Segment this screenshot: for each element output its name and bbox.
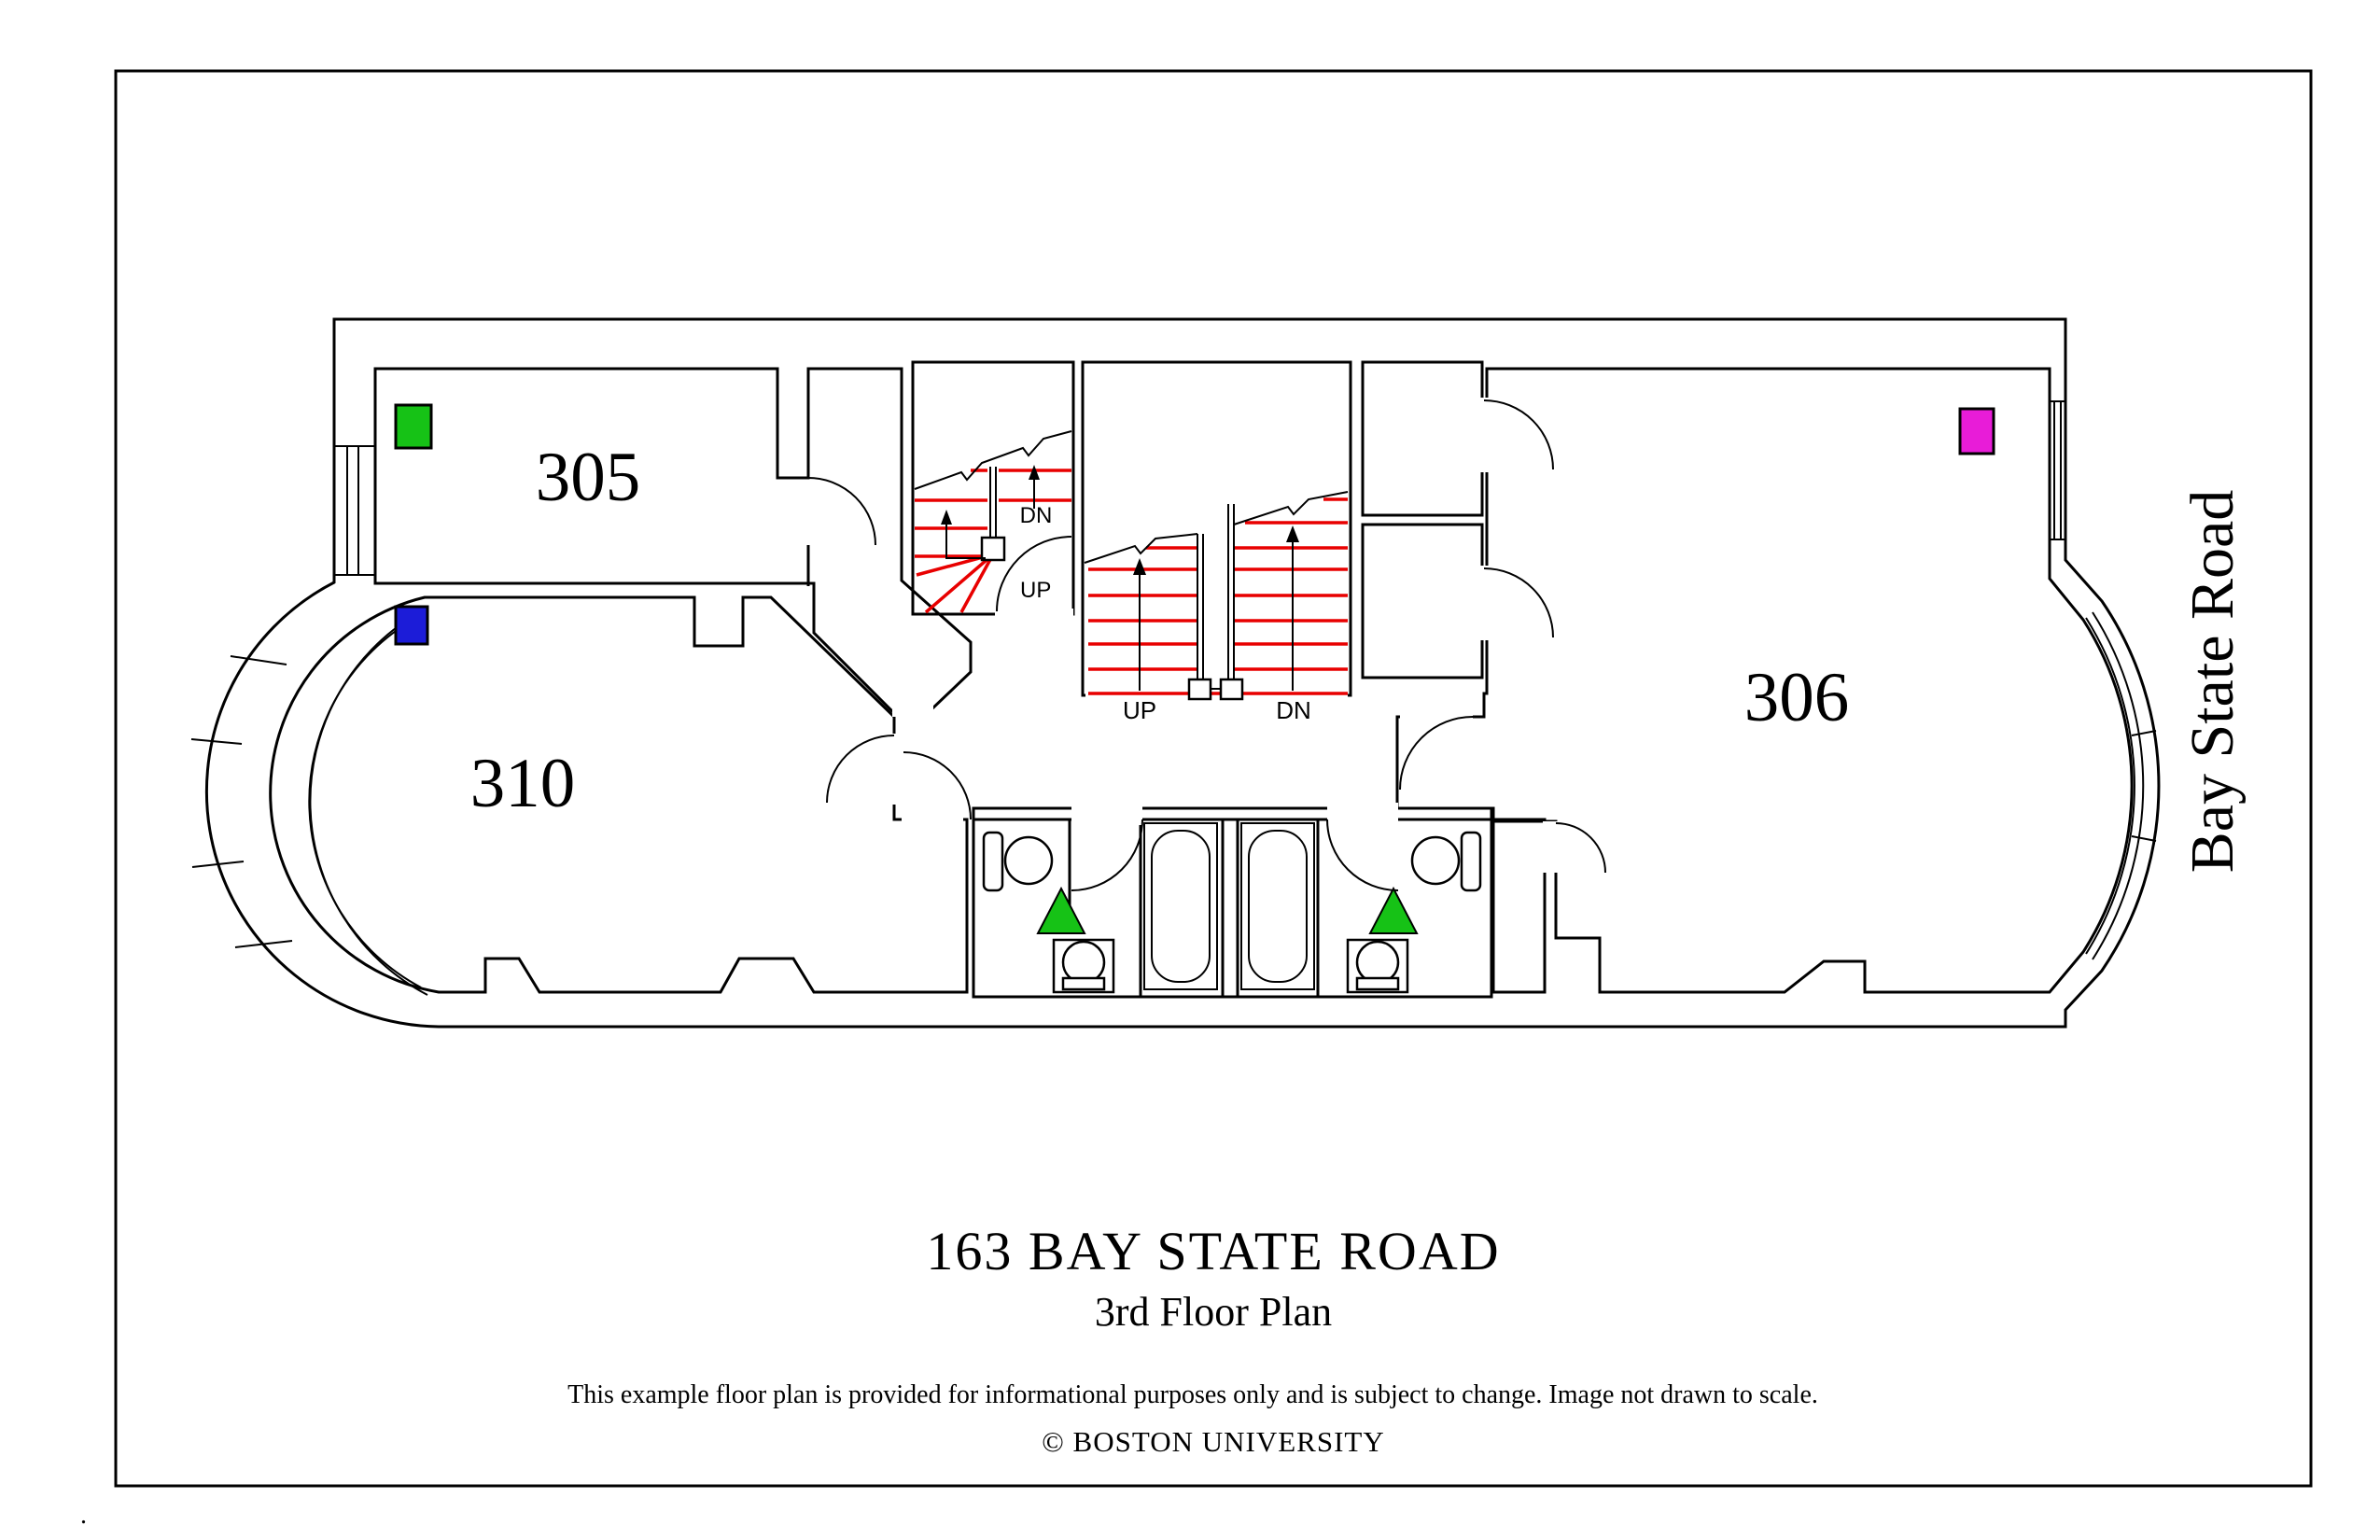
- toilet-bowl-icon: [1005, 837, 1052, 884]
- toilet-tank-icon: [984, 833, 1002, 890]
- plan-subtitle: 3rd Floor Plan: [1095, 1289, 1332, 1335]
- stair-main-dn-label: DN: [1276, 696, 1311, 724]
- opening-305-band: [892, 706, 933, 717]
- opening-closet-south: [1477, 566, 1490, 640]
- opening-310-east: [889, 734, 902, 805]
- opening-closet-north: [1477, 398, 1490, 472]
- room-306-label: 306: [1744, 659, 1850, 736]
- stair-west-dn-label: DN: [1020, 503, 1053, 528]
- green-square-icon: [396, 405, 431, 448]
- opening-bath-east: [1327, 803, 1398, 825]
- opening-bath-west: [1071, 803, 1142, 825]
- opening-stair-west: [995, 609, 1073, 620]
- plan-disclaimer: This example floor plan is provided for …: [567, 1380, 1818, 1409]
- magenta-square-icon: [1960, 409, 1994, 454]
- plan-copyright: © BOSTON UNIVERSITY: [1042, 1425, 1385, 1458]
- opening-closet-bath-east: [1543, 821, 1558, 873]
- floor-plan-canvas: 305 310 306 DN UP UP DN Bay State Road 1…: [0, 0, 2380, 1540]
- blue-square-icon: [396, 607, 427, 644]
- stair-main-up-label: UP: [1123, 696, 1156, 724]
- toilet-tank-icon: [1462, 833, 1480, 890]
- room-305-label: 305: [536, 439, 641, 516]
- plan-title: 163 BAY STATE ROAD: [926, 1221, 1500, 1281]
- stair-west-up-label: UP: [1020, 578, 1051, 603]
- toilet-bowl-icon: [1412, 837, 1459, 884]
- room-310-label: 310: [470, 745, 576, 822]
- stray-period: .: [80, 1501, 87, 1530]
- floor-plan-page: 305 310 306 DN UP UP DN Bay State Road 1…: [0, 0, 2380, 1540]
- street-label: Bay State Road: [2178, 490, 2247, 874]
- opening-310-ext: [902, 814, 963, 825]
